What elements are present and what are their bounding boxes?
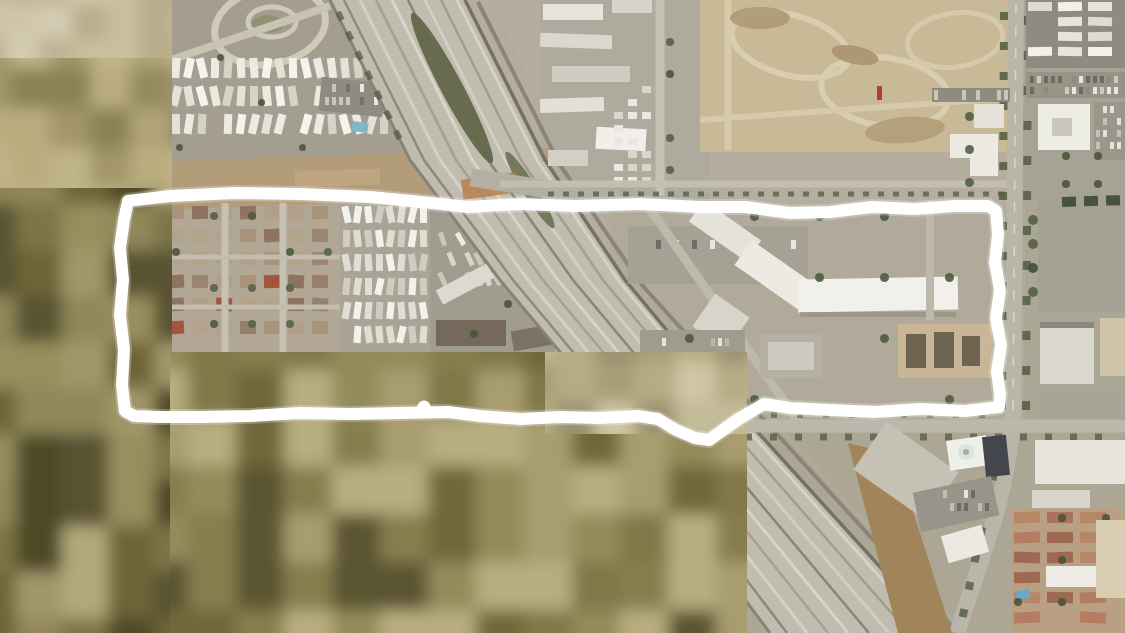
trailer-row (364, 302, 372, 320)
small-units (642, 86, 651, 93)
red-tile-roofs (1014, 532, 1040, 544)
trees (1094, 152, 1102, 160)
small-units (628, 112, 637, 119)
trees (666, 70, 674, 78)
apartment-roofs (1028, 2, 1052, 11)
trailer-row (353, 326, 361, 343)
aerial-map-view (0, 0, 1125, 633)
small-units (614, 112, 623, 119)
parking-lot (1038, 392, 1125, 422)
parking-lot (1038, 200, 1125, 312)
parked-cars (1086, 76, 1090, 83)
small-units (628, 99, 637, 106)
trees (666, 134, 674, 142)
parked-cars (1093, 87, 1097, 94)
building-edge (1040, 322, 1094, 328)
trees (965, 178, 974, 187)
trailer-row (236, 86, 246, 107)
parked-cars (332, 97, 336, 105)
tan-building (1096, 520, 1125, 598)
trailer-row (211, 58, 219, 78)
house-roofs (264, 206, 281, 220)
dirt-dark-patch (730, 7, 790, 29)
red-tile-roofs (1014, 512, 1040, 524)
trailer-row (327, 114, 336, 135)
apartment-roofs (1058, 17, 1082, 27)
trees (286, 284, 294, 292)
trees (666, 166, 674, 174)
trailer-row (289, 58, 297, 78)
apartment-roofs (1058, 32, 1082, 41)
trees (1028, 239, 1038, 249)
parked-cars (1072, 76, 1076, 83)
trailer-row (420, 278, 428, 295)
trees (666, 38, 674, 46)
parked-cars (1110, 106, 1114, 113)
big-warehouse (798, 277, 959, 313)
parked-cars (978, 503, 982, 511)
trailer-row (198, 114, 207, 134)
parked-cars (1037, 76, 1041, 83)
parked-cars (1044, 76, 1048, 83)
parked-cars (1030, 76, 1034, 83)
parked-cars (325, 97, 329, 105)
apartment-roofs (1088, 17, 1112, 27)
trees (504, 300, 512, 308)
parked-cars (985, 503, 989, 511)
parked-cars (1117, 142, 1121, 149)
red-marker (877, 86, 882, 100)
trees (210, 284, 218, 292)
dark-tower (982, 435, 1010, 477)
trees (1028, 287, 1038, 297)
parked-cars (346, 84, 350, 92)
trees (248, 212, 256, 220)
parked-cars (976, 90, 980, 100)
trees (1028, 215, 1038, 225)
trees (286, 320, 294, 328)
parked-cars (1107, 87, 1111, 94)
red-tile-roofs (1014, 551, 1040, 563)
building (768, 342, 814, 370)
trees (1058, 598, 1066, 606)
parked-cars (1058, 76, 1062, 83)
parked-cars (957, 503, 961, 511)
trees (470, 330, 478, 338)
house-roofs (192, 229, 208, 242)
parked-cars (1114, 76, 1118, 83)
parked-cars (1100, 76, 1104, 83)
warehouse (548, 150, 588, 166)
parked-cars (360, 84, 364, 92)
house-roofs (192, 275, 208, 288)
parked-cars (1103, 118, 1107, 125)
apartment-roofs (1088, 47, 1112, 56)
trees (248, 284, 256, 292)
trailer-row (398, 278, 405, 295)
parking-lot (1026, 72, 1125, 98)
apartment-roofs (1028, 47, 1052, 56)
small-units (642, 112, 651, 119)
parked-cars (962, 90, 966, 100)
parked-cars (725, 338, 729, 346)
parked-cars (964, 503, 968, 511)
trees (1094, 180, 1102, 188)
courtyard (934, 332, 954, 368)
house-roofs (288, 206, 304, 219)
parked-cars (1072, 87, 1076, 94)
parked-cars (718, 338, 722, 346)
small-units (628, 151, 637, 158)
trees (1014, 598, 1022, 606)
house-roofs (288, 229, 305, 243)
parked-cars (1103, 130, 1107, 137)
mall-building (1035, 440, 1125, 484)
trailer-row (343, 230, 351, 247)
apartment-roofs (1058, 2, 1082, 11)
house-roofs (312, 275, 328, 288)
parked-cars (791, 240, 796, 249)
tan-lot (1100, 318, 1125, 376)
red-tile-roofs (1047, 532, 1073, 543)
warehouse (552, 66, 630, 82)
apartment-roofs (1058, 47, 1082, 57)
trees (1062, 152, 1070, 160)
trailer-row (420, 230, 428, 247)
parked-cars (1100, 87, 1104, 94)
small-units (628, 138, 637, 145)
small-units (614, 125, 623, 132)
trees (217, 54, 224, 61)
parked-cars (1065, 87, 1069, 94)
courtyard (906, 334, 926, 368)
small-units (642, 164, 651, 171)
parked-cars (346, 97, 350, 105)
parked-cars (1044, 87, 1048, 94)
trailer-row (376, 254, 383, 271)
trailer-row (397, 230, 405, 248)
trees (1058, 514, 1066, 522)
parked-cars (950, 503, 954, 511)
parked-cars (710, 240, 715, 249)
warehouse (543, 4, 603, 20)
parked-cars (1117, 118, 1121, 125)
trees (965, 112, 974, 121)
trees (210, 212, 218, 220)
satellite-image (0, 0, 1125, 633)
parked-cars (1110, 142, 1114, 149)
small-units (614, 138, 623, 145)
trailer-row (224, 114, 233, 134)
parked-cars (692, 240, 697, 249)
house-roofs (264, 228, 281, 242)
trees (1028, 263, 1038, 273)
trees (176, 144, 183, 151)
trailer-row (376, 302, 384, 319)
trailer-row (397, 302, 405, 320)
parked-cars (360, 97, 364, 105)
parked-cars (971, 490, 975, 498)
trailer-row (365, 278, 372, 295)
house-roofs (312, 205, 329, 219)
parked-cars (943, 490, 947, 498)
house-roofs (312, 321, 328, 334)
trailer-row (237, 58, 246, 78)
trailer-row (171, 58, 180, 78)
parked-cars (964, 490, 968, 498)
house-roofs (240, 229, 256, 242)
parked-cars (1117, 130, 1121, 137)
trailer-row (408, 278, 416, 295)
ground-trailer-mid (340, 203, 432, 353)
trees (286, 248, 294, 256)
house-roofs (264, 275, 280, 289)
trees (210, 320, 218, 328)
small-units (642, 151, 651, 158)
trailer-row (249, 58, 259, 79)
trailer-row (419, 326, 427, 343)
trailer-row (223, 58, 232, 78)
parked-cars (1107, 76, 1111, 83)
trees (880, 273, 889, 282)
trees (258, 99, 265, 106)
parked-cars (1004, 90, 1008, 100)
trailer-row (353, 254, 361, 272)
parked-cars (1096, 142, 1100, 149)
outline-pen-knot (418, 401, 431, 414)
warehouse (540, 97, 604, 113)
house-roofs (192, 206, 208, 219)
house-roofs (264, 321, 280, 334)
warehouse (612, 0, 652, 13)
trailer-row (250, 86, 258, 106)
helipad-center (963, 449, 969, 455)
trees (324, 248, 332, 256)
trees (172, 248, 180, 256)
red-tile-roofs (1080, 611, 1107, 623)
courtyard (1052, 118, 1072, 136)
trees (880, 334, 889, 343)
parked-cars (1096, 130, 1100, 137)
parked-cars (1079, 87, 1083, 94)
building (974, 104, 1004, 128)
trees (945, 273, 954, 282)
trees (815, 273, 824, 282)
apartment-roofs (1088, 2, 1112, 11)
parked-cars (332, 84, 336, 92)
trees (1062, 180, 1070, 188)
small-units (614, 164, 623, 171)
house-roofs (192, 321, 208, 334)
parked-cars (1114, 87, 1118, 94)
red-tile-roofs (1014, 611, 1041, 623)
trees (965, 145, 974, 154)
big-building (1040, 322, 1094, 384)
parked-cars (656, 240, 661, 249)
parked-cars (339, 97, 343, 105)
trees (299, 144, 306, 151)
small-units (628, 164, 637, 171)
house-roofs (312, 229, 328, 243)
trailer-row (364, 254, 372, 271)
trailer-row (172, 114, 180, 134)
parked-cars (1051, 76, 1055, 83)
parked-cars (662, 338, 666, 346)
tree-row (1062, 200, 1125, 202)
parked-cars (997, 90, 1001, 100)
parked-cars (934, 90, 938, 100)
warehouse (540, 33, 612, 50)
parked-cars (1030, 87, 1034, 94)
parked-cars (1079, 76, 1083, 83)
trees (685, 334, 694, 343)
apartment-roofs (1088, 32, 1112, 41)
trees (1058, 556, 1066, 564)
trees (248, 320, 256, 328)
red-tile-roofs (1014, 572, 1040, 583)
parked-cars (1103, 106, 1107, 113)
courtyard (962, 336, 980, 366)
dirt-patch-light (295, 169, 381, 188)
parked-cars (711, 338, 715, 346)
parked-cars (1086, 87, 1090, 94)
parked-cars (1093, 76, 1097, 83)
